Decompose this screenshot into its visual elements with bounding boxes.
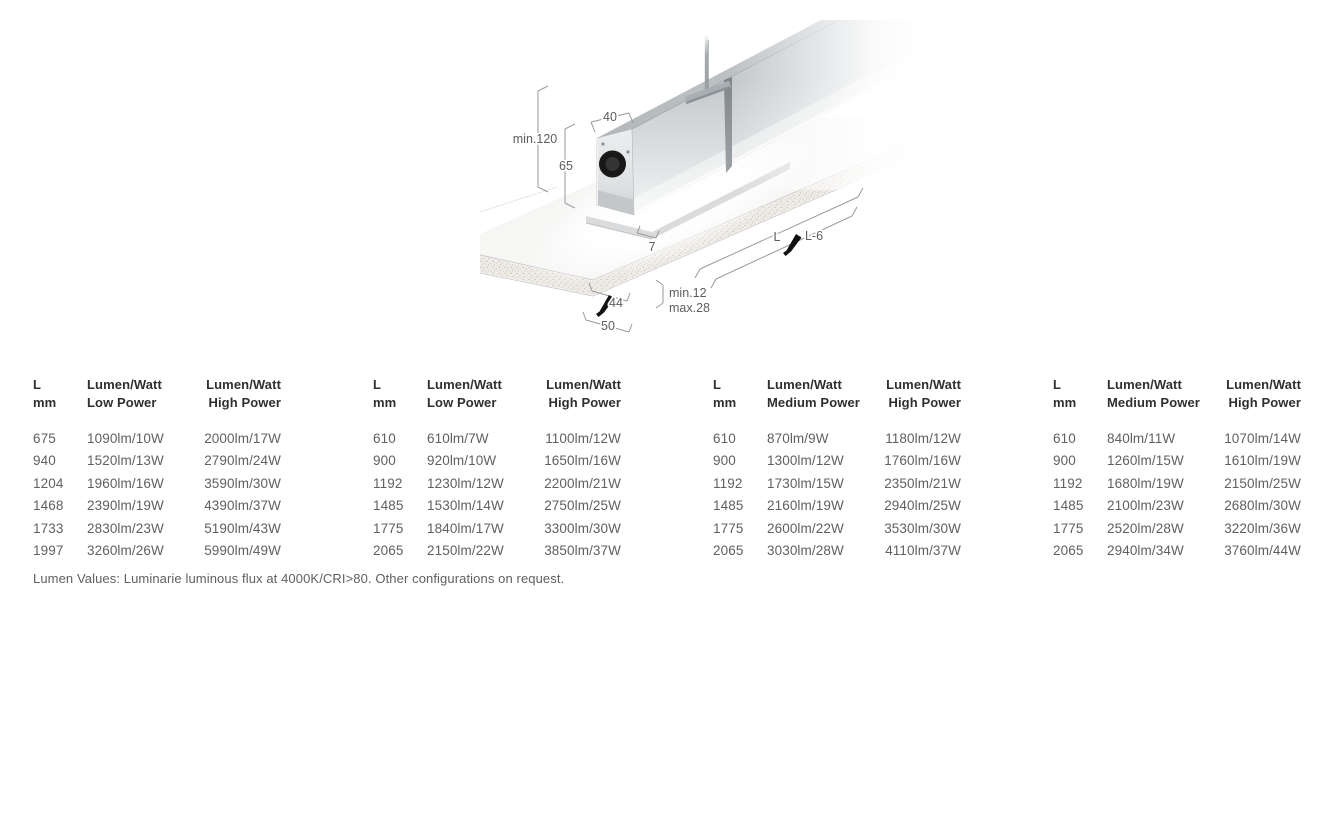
- table-cell: 2000lm/17W: [199, 428, 281, 450]
- table-cell: 920lm/10W: [427, 450, 539, 472]
- lumen-table-medium-power-2: LmmLumen/WattMedium PowerLumen/WattHigh …: [1053, 376, 1301, 562]
- table-cell: 2150lm/22W: [427, 540, 539, 562]
- table-cell: 1650lm/16W: [539, 450, 621, 472]
- table-cell: 3300lm/30W: [539, 518, 621, 540]
- dim-top-width: 40: [603, 110, 617, 124]
- table-cell: 2680lm/30W: [1219, 495, 1301, 517]
- table-cell: 2520lm/28W: [1107, 518, 1219, 540]
- bracket-rod: [705, 34, 708, 94]
- column-header: Lumen/WattHigh Power: [879, 376, 961, 428]
- table-cell: 2350lm/21W: [879, 473, 961, 495]
- table-cell: 1192: [373, 473, 427, 495]
- table-cell: 3760lm/44W: [1219, 540, 1301, 562]
- table-cell: 840lm/11W: [1107, 428, 1219, 450]
- table-cell: 2940lm/34W: [1107, 540, 1219, 562]
- lumen-table-low-power-2: LmmLumen/WattLow PowerLumen/WattHigh Pow…: [373, 376, 621, 562]
- table-cell: 1485: [373, 495, 427, 517]
- column-header: Lmm: [713, 376, 767, 428]
- column-header: Lmm: [373, 376, 427, 428]
- table-cell: 1230lm/12W: [427, 473, 539, 495]
- table-cell: 1468: [33, 495, 87, 517]
- table-cell: 1775: [713, 518, 767, 540]
- table-cell: 1997: [33, 540, 87, 562]
- table-cell: 3850lm/37W: [539, 540, 621, 562]
- dim-panel-min: min.12: [669, 286, 707, 300]
- table-cell: 3260lm/26W: [87, 540, 199, 562]
- table-cell: 2160lm/19W: [767, 495, 879, 517]
- table-cell: 1610lm/19W: [1219, 450, 1301, 472]
- column-header: Lumen/WattLow Power: [87, 376, 199, 428]
- lumen-table-low-power-1: LmmLumen/WattLow PowerLumen/WattHigh Pow…: [33, 376, 281, 562]
- table-cell: 1192: [713, 473, 767, 495]
- table-cell: 3530lm/30W: [879, 518, 961, 540]
- lumen-tables-row: LmmLumen/WattLow PowerLumen/WattHigh Pow…: [33, 376, 1301, 562]
- table-cell: 610: [1053, 428, 1107, 450]
- dim-length: L: [774, 230, 781, 244]
- table-cell: 2940lm/25W: [879, 495, 961, 517]
- table-cell: 900: [373, 450, 427, 472]
- pen-icon: [783, 234, 802, 256]
- column-header: Lumen/WattLow Power: [427, 376, 539, 428]
- table-cell: 675: [33, 428, 87, 450]
- table-cell: 610: [373, 428, 427, 450]
- table-cell: 2065: [373, 540, 427, 562]
- table-cell: 900: [713, 450, 767, 472]
- dim-cutout-length: L-6: [805, 229, 823, 243]
- table-cell: 1070lm/14W: [1219, 428, 1301, 450]
- table-cell: 1100lm/12W: [539, 428, 621, 450]
- table-cell: 900: [1053, 450, 1107, 472]
- table-cell: 5990lm/49W: [199, 540, 281, 562]
- dim-trim-height: 7: [649, 240, 656, 254]
- dim-panel-max: max.28: [669, 301, 710, 315]
- table-cell: 870lm/9W: [767, 428, 879, 450]
- dim-flange-width: 50: [601, 319, 615, 333]
- lumen-values-footnote: Lumen Values: Luminarie luminous flux at…: [33, 571, 564, 586]
- table-cell: 1192: [1053, 473, 1107, 495]
- table-cell: 3220lm/36W: [1219, 518, 1301, 540]
- luminaire-section-drawing: 40 min.120 65 7 L L-6 min.12 max.28 44 5…: [480, 20, 920, 350]
- column-header: Lumen/WattMedium Power: [1107, 376, 1219, 428]
- installation-drawing: 40 min.120 65 7 L L-6 min.12 max.28 44 5…: [480, 20, 920, 350]
- table-cell: 3590lm/30W: [199, 473, 281, 495]
- table-cell: 4390lm/37W: [199, 495, 281, 517]
- fade-overlay: [730, 20, 920, 190]
- table-cell: 2200lm/21W: [539, 473, 621, 495]
- table-cell: 1300lm/12W: [767, 450, 879, 472]
- column-header: Lumen/WattHigh Power: [1219, 376, 1301, 428]
- screw-dot-right: [626, 150, 629, 153]
- table-cell: 1180lm/12W: [879, 428, 961, 450]
- table-cell: 1680lm/19W: [1107, 473, 1219, 495]
- table-cell: 1520lm/13W: [87, 450, 199, 472]
- table-cell: 1960lm/16W: [87, 473, 199, 495]
- datasheet-page: { "diagram": { "dims": { "top_width": "4…: [0, 0, 1344, 824]
- table-cell: 610: [713, 428, 767, 450]
- table-cell: 2830lm/23W: [87, 518, 199, 540]
- table-cell: 1840lm/17W: [427, 518, 539, 540]
- table-cell: 2150lm/25W: [1219, 473, 1301, 495]
- dim-body-height: 65: [559, 159, 573, 173]
- screw-dot-left: [601, 142, 604, 145]
- column-header: Lumen/WattHigh Power: [199, 376, 281, 428]
- table-cell: 940: [33, 450, 87, 472]
- table-cell: 610lm/7W: [427, 428, 539, 450]
- dim-cutout-width: 44: [609, 296, 623, 310]
- table-cell: 2100lm/23W: [1107, 495, 1219, 517]
- lumen-table-medium-power-1: LmmLumen/WattMedium PowerLumen/WattHigh …: [713, 376, 961, 562]
- table-cell: 2390lm/19W: [87, 495, 199, 517]
- table-cell: 3030lm/28W: [767, 540, 879, 562]
- column-header: Lmm: [33, 376, 87, 428]
- table-cell: 1760lm/16W: [879, 450, 961, 472]
- dim-recess-depth: min.120: [513, 132, 558, 146]
- table-cell: 2065: [713, 540, 767, 562]
- column-header: Lumen/WattMedium Power: [767, 376, 879, 428]
- table-cell: 2790lm/24W: [199, 450, 281, 472]
- table-cell: 1775: [1053, 518, 1107, 540]
- table-cell: 1204: [33, 473, 87, 495]
- table-cell: 1730lm/15W: [767, 473, 879, 495]
- table-cell: 2750lm/25W: [539, 495, 621, 517]
- table-cell: 1090lm/10W: [87, 428, 199, 450]
- table-cell: 5190lm/43W: [199, 518, 281, 540]
- table-cell: 4110lm/37W: [879, 540, 961, 562]
- table-cell: 1530lm/14W: [427, 495, 539, 517]
- table-cell: 1260lm/15W: [1107, 450, 1219, 472]
- table-cell: 2600lm/22W: [767, 518, 879, 540]
- table-cell: 1775: [373, 518, 427, 540]
- table-cell: 1485: [1053, 495, 1107, 517]
- column-header: Lumen/WattHigh Power: [539, 376, 621, 428]
- table-cell: 2065: [1053, 540, 1107, 562]
- table-cell: 1485: [713, 495, 767, 517]
- column-header: Lmm: [1053, 376, 1107, 428]
- table-cell: 1733: [33, 518, 87, 540]
